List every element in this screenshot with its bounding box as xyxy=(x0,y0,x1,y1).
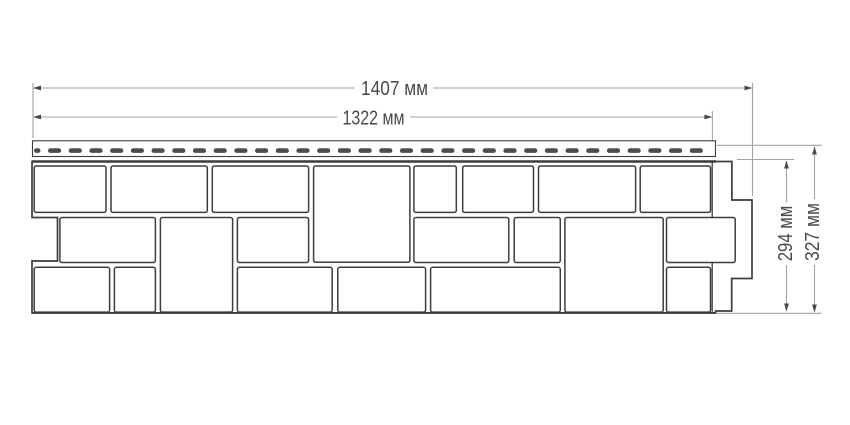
svg-text:294 мм: 294 мм xyxy=(775,206,797,262)
svg-text:1407 мм: 1407 мм xyxy=(361,78,428,100)
svg-text:327 мм: 327 мм xyxy=(802,203,824,261)
svg-text:1322 мм: 1322 мм xyxy=(343,107,405,129)
